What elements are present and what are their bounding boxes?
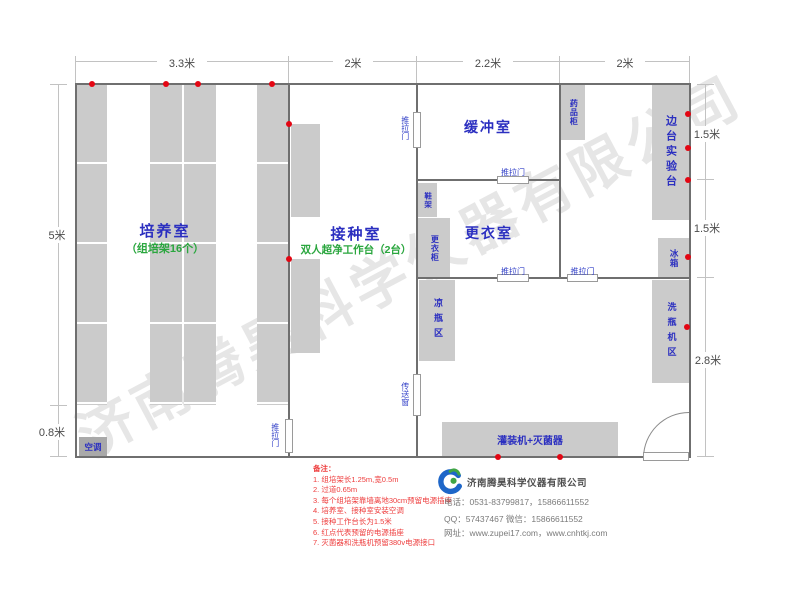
shoe-rack-label: 鞋架 [423,192,431,209]
clean-bench [291,259,320,353]
power-socket-dot [684,324,690,330]
power-socket-dot [685,177,691,183]
dim-tick [50,84,67,85]
room-cultivation-sub: （组培架16个） [100,240,230,256]
wall-cultivation-inoculation [288,83,290,458]
dim-tick [50,456,67,457]
dim-right-3: 2.8米 [691,352,725,368]
sliding-door-buffer [413,112,421,148]
room-cultivation-label: 培养室 [115,220,215,241]
shoe-rack: 鞋架 [418,183,437,217]
power-socket-dot [195,81,201,87]
note-item: 5. 接种工作台长为1.5米 [313,517,463,528]
dim-left-2: 0.8米 [34,424,70,440]
dim-tick [689,56,690,83]
sliding-door-cultivation [285,419,293,453]
power-socket-dot [685,111,691,117]
dim-tick [288,56,289,83]
power-socket-dot [286,121,292,127]
sliding-door-label: 推拉门 [270,423,279,447]
room-buffer-label: 缓冲室 [438,117,538,137]
power-socket-dot [685,254,691,260]
fridge-label: 冰箱 [669,249,678,268]
dim-tick [416,56,417,83]
dim-tick [697,277,714,278]
air-conditioner-label: 空调 [84,441,101,453]
room-inoculation-sub: 双人超净工作台（2台） [294,242,418,257]
wardrobe-label: 更衣柜 [430,235,439,262]
cooling-bottle-area-label: 凉瓶区 [432,298,442,343]
dim-tick [75,56,76,83]
dim-line-left [58,84,59,457]
dim-top-2: 2米 [333,55,373,71]
culture-rack-column [257,84,288,405]
dim-tick [559,56,560,83]
dim-top-1: 3.3米 [157,55,207,71]
company-name: 济南腾昊科学仪器有限公司 [467,475,587,489]
side-bench: 边台实验台 [652,84,689,220]
bottle-washer-area: 洗瓶机区 [652,280,689,383]
sliding-door-label: 推拉门 [567,266,598,277]
filling-machine-sterilizer: 灌装机+灭菌器 [442,422,618,457]
sliding-door-label: 推拉门 [497,266,529,277]
cooling-bottle-area: 凉瓶区 [419,280,455,361]
wall-changing-bottomroom [417,277,690,279]
floor-plan: 济南腾昊科学仪器有限公司 3.3米 2米 2.2米 2米 5米 0.8米 1.5… [0,0,800,600]
power-socket-dot [557,454,563,460]
medicine-cabinet-label: 药品柜 [569,99,578,126]
dim-tick [50,405,67,406]
dim-left-1: 5米 [42,227,72,243]
dim-tick [697,456,714,457]
dim-tick [697,84,714,85]
side-bench-label: 边台实验台 [664,115,676,190]
room-changing-label: 更衣室 [439,223,539,243]
transfer-window-label: 传送窗 [400,382,409,406]
sliding-door-label: 推拉门 [400,116,409,140]
note-item: 4. 培养室、接种室安装空调 [313,506,463,517]
wall-buffer-right [559,83,561,279]
power-socket-dot [495,454,501,460]
company-phone: 电话：0531-83799817，15866611552 [444,496,589,508]
power-socket-dot [269,81,275,87]
power-socket-dot [163,81,169,87]
medicine-cabinet: 药品柜 [561,84,585,140]
entry-door-leaf [643,452,689,461]
room-inoculation-label: 接种室 [306,223,406,244]
sliding-door-label: 推拉门 [497,167,529,178]
clean-bench [291,124,320,217]
transfer-window [413,374,421,416]
dim-top-3: 2.2米 [463,55,513,71]
wall-right [689,83,691,458]
note-item: 6. 红点代表预留的电源插座 [313,528,463,539]
wall-left [75,83,77,458]
company-qq-wechat: QQ：57437467 微信：15866611552 [444,513,583,525]
bottle-washer-area-label: 洗瓶机区 [666,302,676,362]
dim-tick [697,179,714,180]
wall-buffer-changing [417,179,560,181]
filling-machine-label: 灌装机+灭菌器 [497,432,563,447]
air-conditioner: 空调 [79,437,107,457]
dim-right-1: 1.5米 [690,126,724,142]
power-socket-dot [286,256,292,262]
company-website: 网址：www.zupei17.com，www.cnhtkj.com [444,527,607,539]
note-item: 7. 灭菌器和洗瓶机预留380v电源接口 [313,538,463,549]
dim-right-2: 1.5米 [690,220,724,236]
power-socket-dot [89,81,95,87]
dim-top-4: 2米 [605,55,645,71]
power-socket-dot [685,145,691,151]
